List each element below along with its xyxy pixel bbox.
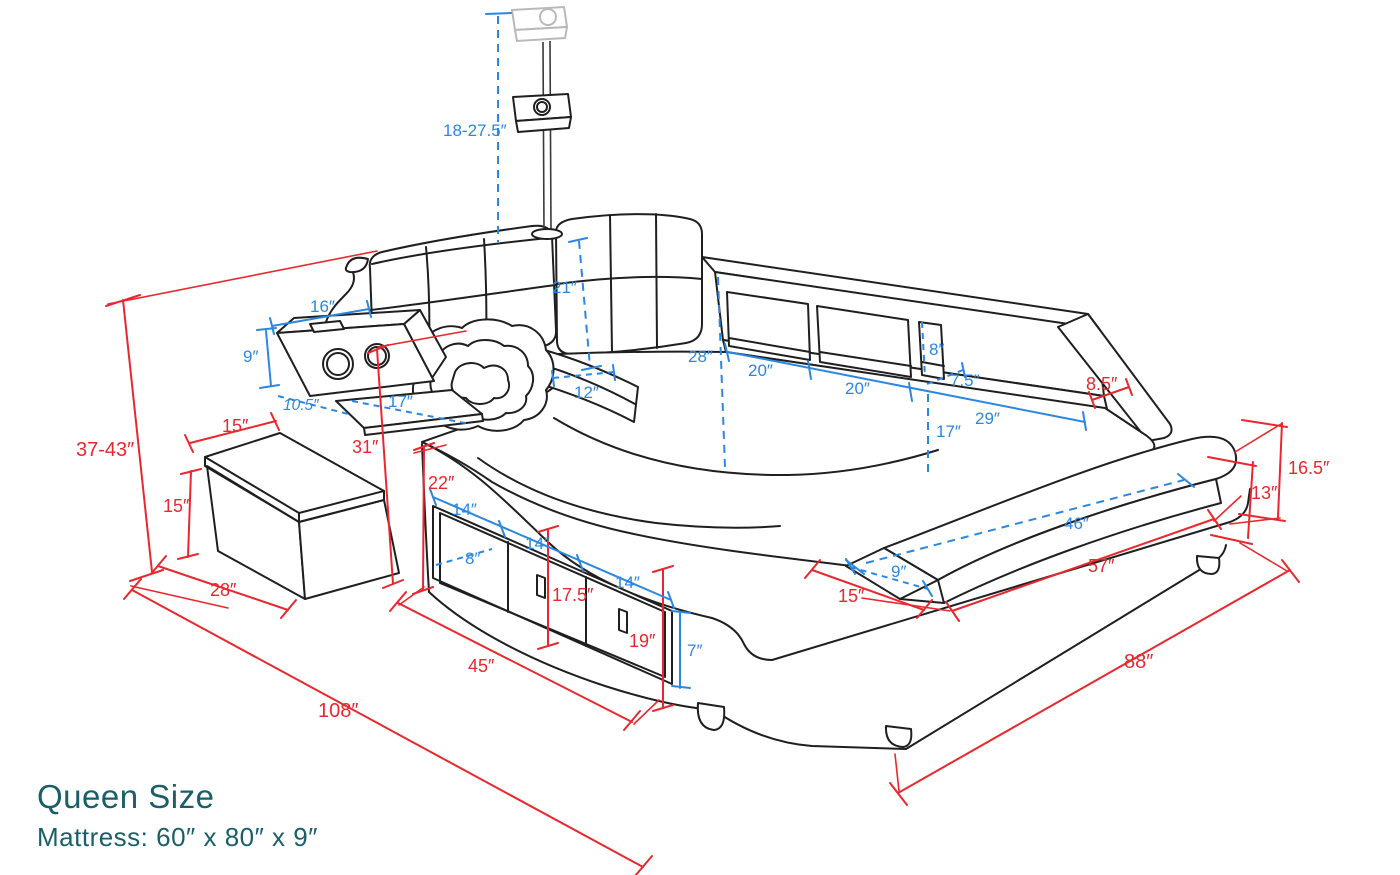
dim-drawer-unit-length: 45″ [468,656,495,676]
dim-side-tray-depth: 17″ [388,392,413,411]
drawer-handle [619,609,627,633]
dim-mattress-left-width: 22″ [428,473,455,493]
dim-plinth-height: 7″ [687,641,702,660]
dim-headrest-width: 12″ [574,383,599,402]
dim-shelf-section-1: 20″ [748,361,773,380]
lamp-head [346,258,368,272]
dim-total-height: 37-43″ [76,439,134,461]
dim-total-length: 108″ [318,700,358,722]
dim-drawer-panel-height: 17.5″ [552,585,594,605]
bed-foot [698,703,724,730]
dim-drawer-depth: 8″ [465,549,480,568]
dim-cushion-height: 21″ [552,278,577,297]
dim-drawer-3: 14″ [615,573,640,592]
ottoman [205,433,399,599]
dim-projector-drop: 18-27.5″ [443,121,507,140]
dim-drawer-2: 14″ [525,534,550,553]
lamp-base [310,321,344,332]
dim-ottoman-height: 15″ [163,496,190,516]
dim-corner-height: 16.5″ [1288,458,1330,478]
dim-speaker-shelf-height: 9″ [243,347,258,366]
dim-speaker-shelf-width: 16″ [310,297,335,316]
bed-foot [886,726,911,747]
dim-rail-height: 17″ [936,422,961,441]
dim-shelf-section-2: 20″ [845,379,870,398]
dim-base-height: 19″ [629,631,656,651]
drawer-handle [537,575,545,598]
size-title: Queen Size [37,778,318,816]
dim-shelf-section-3: 29″ [975,409,1000,428]
dim-rail-top-width: 8.5″ [1086,374,1118,394]
dim-total-width: 88″ [1124,651,1153,673]
dim-speaker-shelf-depth: 10.5″ [283,397,319,414]
title-block: Queen Size Mattress: 60″ x 80″ x 9″ [37,778,318,853]
dim-bench-length: 57″ [1088,556,1115,576]
projector-mount [512,7,571,239]
dim-cubby-height: 8″ [929,340,944,359]
dim-platform-height: 13″ [1251,483,1278,503]
bed-foot [1197,556,1219,574]
dim-mattress-head-width: 28″ [688,347,713,366]
diagram-canvas: 18-27.5″ 21″ 16″ 9″ 10.5″ 17″ 12″ 28″ 20… [0,0,1400,875]
dim-ottoman-width: 15″ [222,416,249,436]
dim-shelf-depth: 7.5″ [950,371,980,390]
bed-dimension-diagram: 18-27.5″ 21″ 16″ 9″ 10.5″ 17″ 12″ 28″ 20… [0,0,1400,875]
dim-side-table-height: 31″ [352,437,379,457]
dim-bench-depth: 9″ [891,562,906,581]
mattress-spec: Mattress: 60″ x 80″ x 9″ [37,822,318,853]
pole-base [532,229,562,239]
dim-ottoman-depth: 28″ [210,580,237,600]
dim-bench-top-length: 46″ [1064,514,1089,533]
dim-front-gap: 15″ [838,586,865,606]
dim-drawer-1: 14″ [452,500,477,519]
